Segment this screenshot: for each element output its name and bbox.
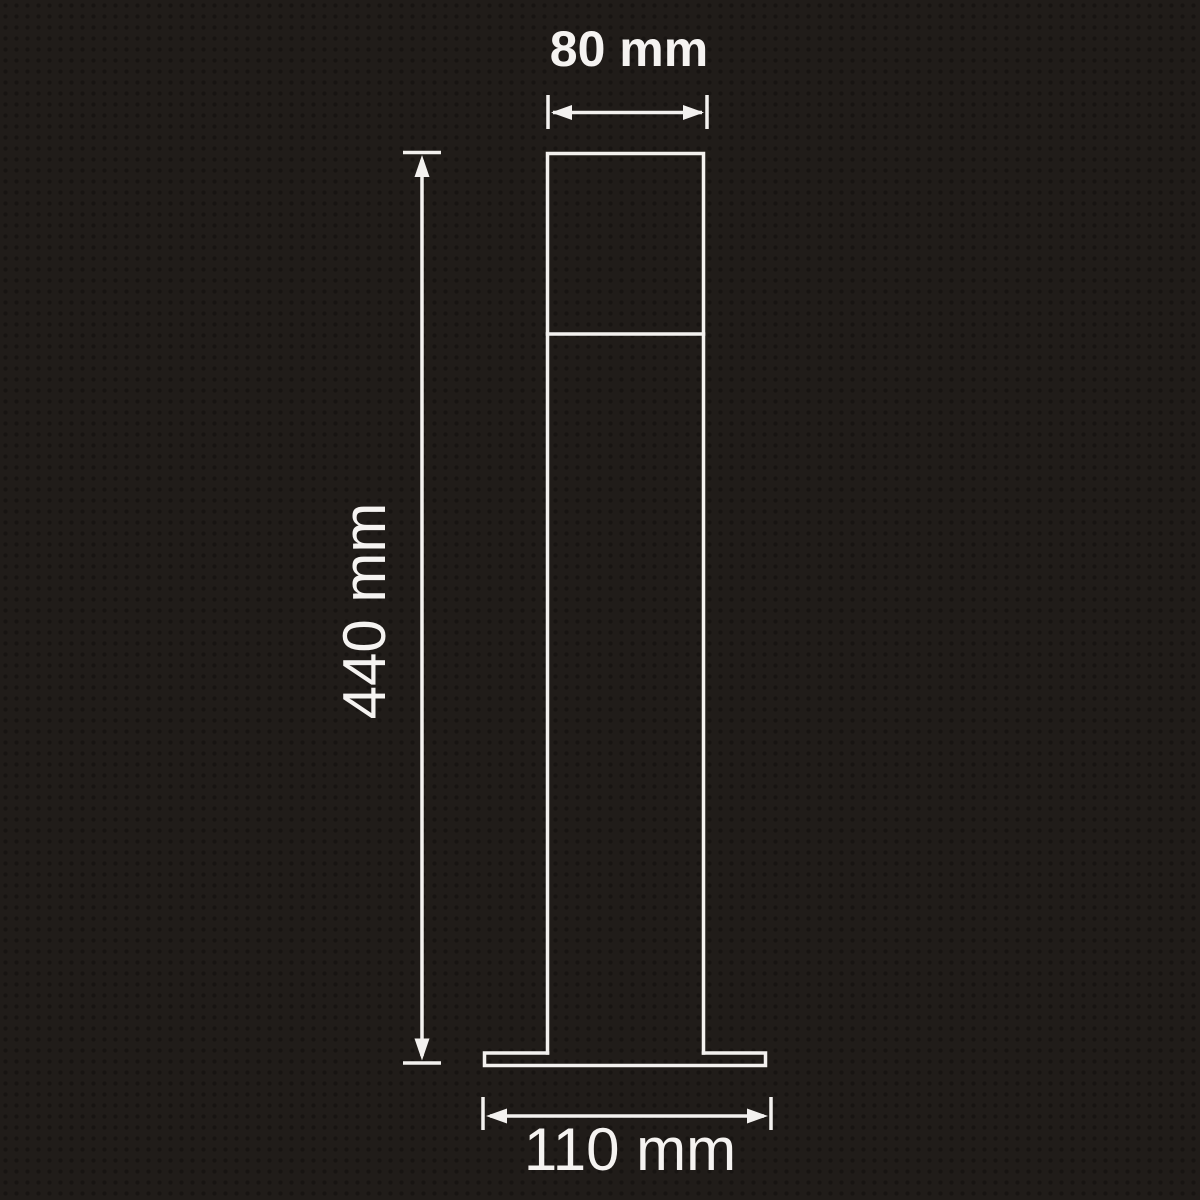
bollard-light-dimension-diagram: 80 mm 440 mm 110 mm <box>0 0 1200 1200</box>
top-width-label: 80 mm <box>550 24 708 74</box>
dimension-lines-group <box>403 95 771 1130</box>
fixture-outline-group <box>485 154 766 1066</box>
base-width-label: 110 mm <box>524 1120 736 1180</box>
base-dim-arrowhead-left-icon <box>486 1109 507 1124</box>
base-flange-outline <box>485 1053 766 1066</box>
height-label: 440 mm <box>335 503 395 720</box>
top-dim-arrowhead-right-icon <box>683 105 704 120</box>
top-dim-arrowhead-left-icon <box>551 105 572 120</box>
base-dim-arrowhead-right-icon <box>747 1109 768 1124</box>
dimension-arrowheads-group <box>415 105 769 1124</box>
post-outline <box>548 154 704 1054</box>
height-dim-arrowhead-down-icon <box>415 1039 430 1061</box>
diagram-canvas <box>0 0 1200 1200</box>
height-dim-arrowhead-up-icon <box>415 155 430 177</box>
